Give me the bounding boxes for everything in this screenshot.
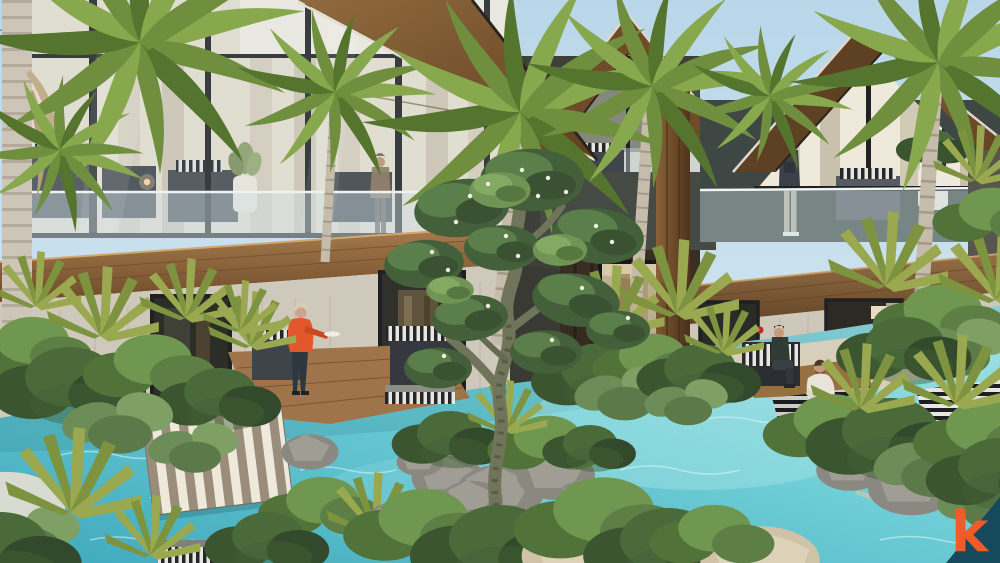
right-balcony-cushion	[840, 168, 896, 179]
rendering-stage: k	[0, 0, 1000, 563]
watermark-letter: k	[951, 500, 990, 563]
villa-courtyard-scene: k	[0, 0, 1000, 563]
watermark: k	[946, 497, 1000, 563]
